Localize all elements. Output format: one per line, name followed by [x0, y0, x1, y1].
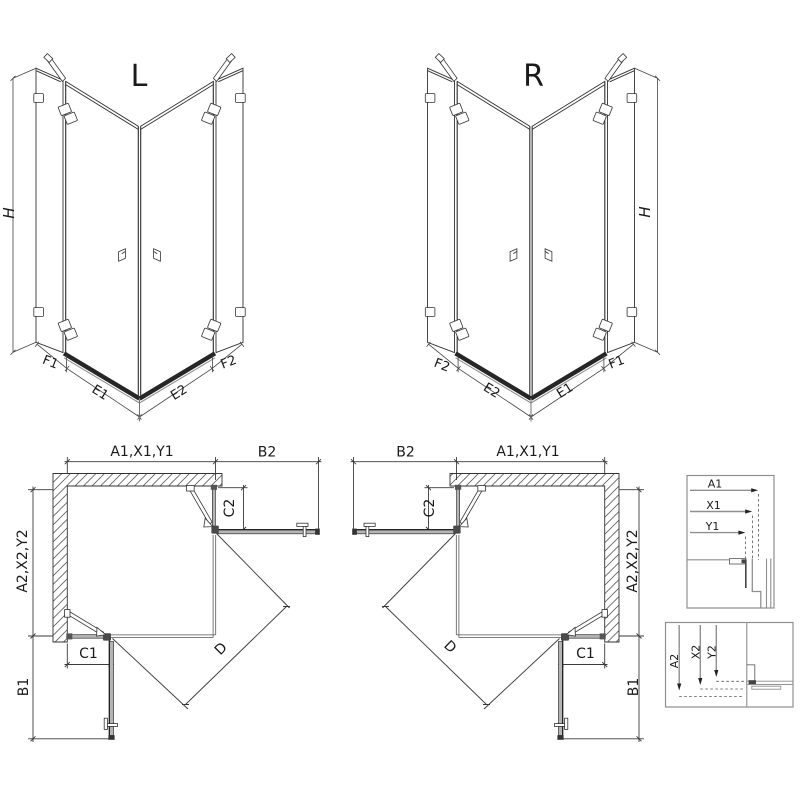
dim-label-f1: F1 — [607, 353, 627, 373]
dim-label-width-top: A1,X1,Y1 — [110, 444, 173, 460]
dim-label-fixed-side: C1 — [79, 646, 98, 662]
dim-label-f1: F1 — [40, 353, 60, 373]
plan-geometry-mirrored — [351, 457, 645, 742]
dim-label-f2: F2 — [432, 356, 452, 376]
iso-view-left: L H F1 E1 E2 F2 — [0, 54, 245, 422]
dim-label-depth-side: A2,X2,Y2 — [625, 529, 641, 592]
dim-label-fixed-top: C2 — [422, 499, 438, 518]
dim-label-door-top: B2 — [396, 445, 415, 461]
technical-drawing-page: L H F1 E1 E2 F2 R H F2 E2 E1 F1 A1,X1,Y1… — [0, 0, 800, 800]
detail-width-section: A1 X1 Y1 — [687, 476, 774, 609]
dim-label-depth-side: A2,X2,Y2 — [15, 529, 31, 592]
dim-label-width-top: A1,X1,Y1 — [496, 444, 559, 460]
dim-label-height: H — [0, 207, 18, 218]
detail-label-x2: X2 — [690, 645, 703, 660]
dim-label-door-side: B1 — [16, 678, 32, 697]
detail-label-a2: A2 — [668, 654, 681, 669]
dim-label-fixed-top: C2 — [222, 499, 238, 518]
variant-label-left: L — [131, 59, 148, 94]
dim-label-f2: F2 — [219, 353, 239, 373]
detail-label-x1: X1 — [706, 499, 721, 512]
variant-label-right: R — [523, 59, 544, 94]
detail-depth-section: A2 X2 Y2 — [666, 623, 794, 708]
detail-label-y2: Y2 — [706, 645, 719, 660]
dim-label-diagonal: D — [212, 640, 231, 659]
dim-label-diagonal: D — [440, 638, 459, 657]
plan-geometry — [28, 457, 322, 742]
shower-enclosure-drawing: L H F1 E1 E2 F2 R H F2 E2 E1 F1 A1,X1,Y1… — [0, 0, 800, 800]
dim-label-door-top: B2 — [258, 445, 277, 461]
detail-label-a1: A1 — [708, 478, 723, 491]
dim-label-height: H — [636, 206, 654, 217]
dim-label-door-side: B1 — [626, 678, 642, 697]
detail-label-y1: Y1 — [705, 520, 720, 533]
dim-label-fixed-side: C1 — [576, 646, 595, 662]
plan-view-right: B2 A1,X1,Y1 A2,X2,Y2 B1 C2 C1 D — [351, 444, 645, 742]
iso-view-right: R H F2 E2 E1 F1 — [425, 54, 660, 422]
plan-view-left: A1,X1,Y1 B2 A2,X2,Y2 B1 C2 C1 D — [15, 444, 322, 742]
